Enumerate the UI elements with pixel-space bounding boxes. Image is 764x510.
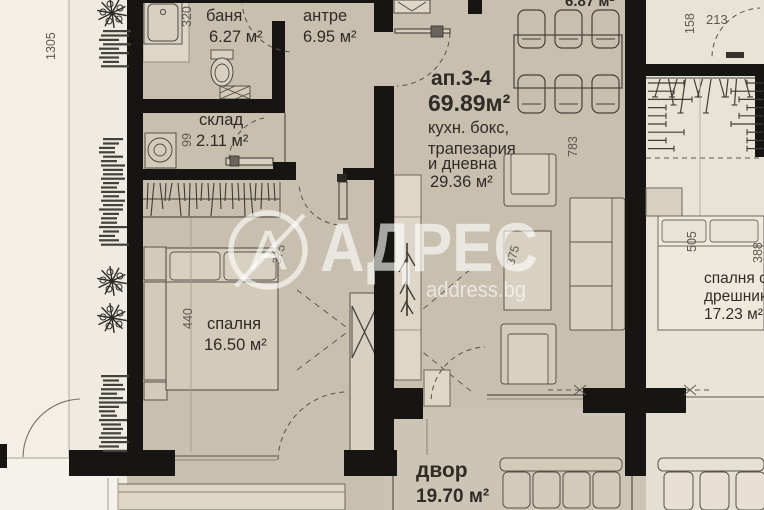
svg-text:440: 440 bbox=[181, 308, 195, 329]
svg-text:505: 505 bbox=[685, 231, 699, 252]
svg-text:6.95 м²: 6.95 м² bbox=[303, 28, 357, 46]
svg-text:дрешник: дрешник bbox=[704, 288, 764, 305]
svg-text:АДРЕС: АДРЕС bbox=[320, 209, 538, 286]
svg-text:двор: двор bbox=[416, 459, 468, 482]
svg-text:783: 783 bbox=[566, 136, 580, 157]
svg-text:320: 320 bbox=[180, 6, 194, 27]
svg-text:ап.3-4: ап.3-4 bbox=[431, 67, 492, 90]
svg-text:баня: баня bbox=[206, 7, 242, 25]
svg-text:99: 99 bbox=[180, 133, 194, 147]
svg-text:2.11 м²: 2.11 м² bbox=[196, 132, 249, 150]
svg-text:17.23 м²: 17.23 м² bbox=[704, 306, 763, 323]
svg-text:19.70 м²: 19.70 м² bbox=[416, 486, 489, 507]
svg-text:спалня с: спалня с bbox=[704, 270, 764, 287]
svg-text:6.27 м²: 6.27 м² bbox=[209, 28, 263, 46]
svg-text:16.50 м²: 16.50 м² bbox=[204, 336, 267, 354]
svg-text:склад: склад bbox=[199, 111, 243, 129]
svg-text:69.89м²: 69.89м² bbox=[428, 90, 511, 116]
svg-text:спалня: спалня bbox=[207, 315, 261, 333]
svg-text:213: 213 bbox=[706, 12, 728, 27]
svg-text:кухн. бокс,: кухн. бокс, bbox=[428, 119, 509, 137]
svg-text:29.36 м²: 29.36 м² bbox=[430, 173, 493, 191]
svg-text:address.bg: address.bg bbox=[426, 277, 526, 302]
svg-text:388: 388 bbox=[751, 242, 764, 263]
svg-text:6.87 м²: 6.87 м² bbox=[565, 0, 614, 10]
svg-text:1305: 1305 bbox=[44, 32, 58, 60]
svg-text:антре: антре bbox=[303, 7, 347, 25]
svg-text:158: 158 bbox=[683, 13, 697, 34]
svg-text:и дневна: и дневна bbox=[428, 155, 498, 173]
